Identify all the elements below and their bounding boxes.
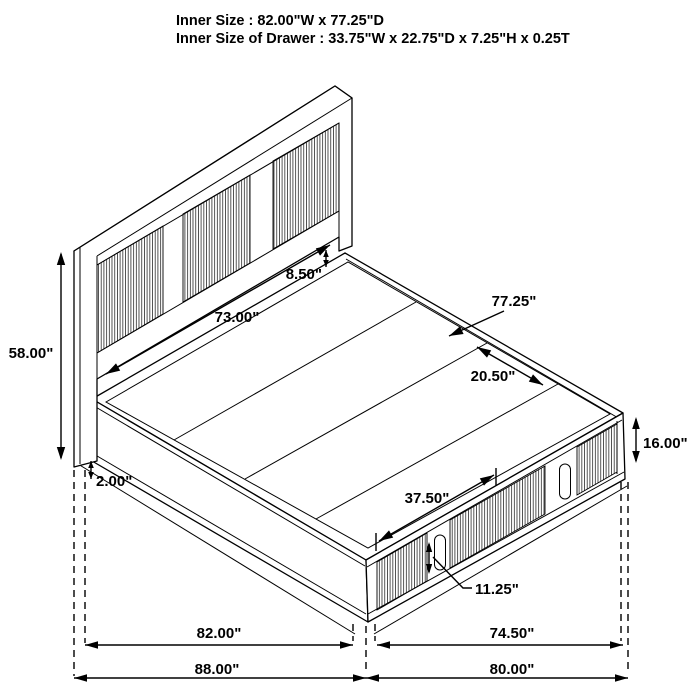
dim-headboard-height-label: 58.00" [9, 345, 54, 362]
diagram-canvas: Inner Size : 82.00"W x 77.25"D Inner Siz… [0, 0, 700, 700]
dim-base-height-label: 16.00" [643, 435, 688, 452]
title-inner-size: Inner Size : 82.00"W x 77.25"D [176, 13, 384, 29]
dim-headboard-width-label: 73.00" [215, 309, 260, 326]
dim-inner-width-label: 82.00" [197, 625, 242, 642]
dim-rail-label: 8.50" [286, 266, 322, 283]
dim-slat-gap-label: 20.50" [471, 368, 516, 385]
dim-drawer-height-label: 11.25" [475, 581, 519, 598]
bed-dimension-diagram: Inner Size : 82.00"W x 77.25"D Inner Siz… [0, 0, 700, 700]
dim-inner-depth-label: 74.50" [490, 625, 535, 642]
dim-leg-height-label: 2.00" [96, 473, 132, 490]
title-drawer-size: Inner Size of Drawer : 33.75"W x 22.75"D… [176, 31, 570, 47]
dim-overall-depth-label: 80.00" [490, 661, 535, 678]
dim-overall-width-label: 88.00" [195, 661, 240, 678]
dim-drawer-width-label: 37.50" [405, 490, 450, 507]
dim-depth-label: 77.25" [492, 293, 537, 310]
